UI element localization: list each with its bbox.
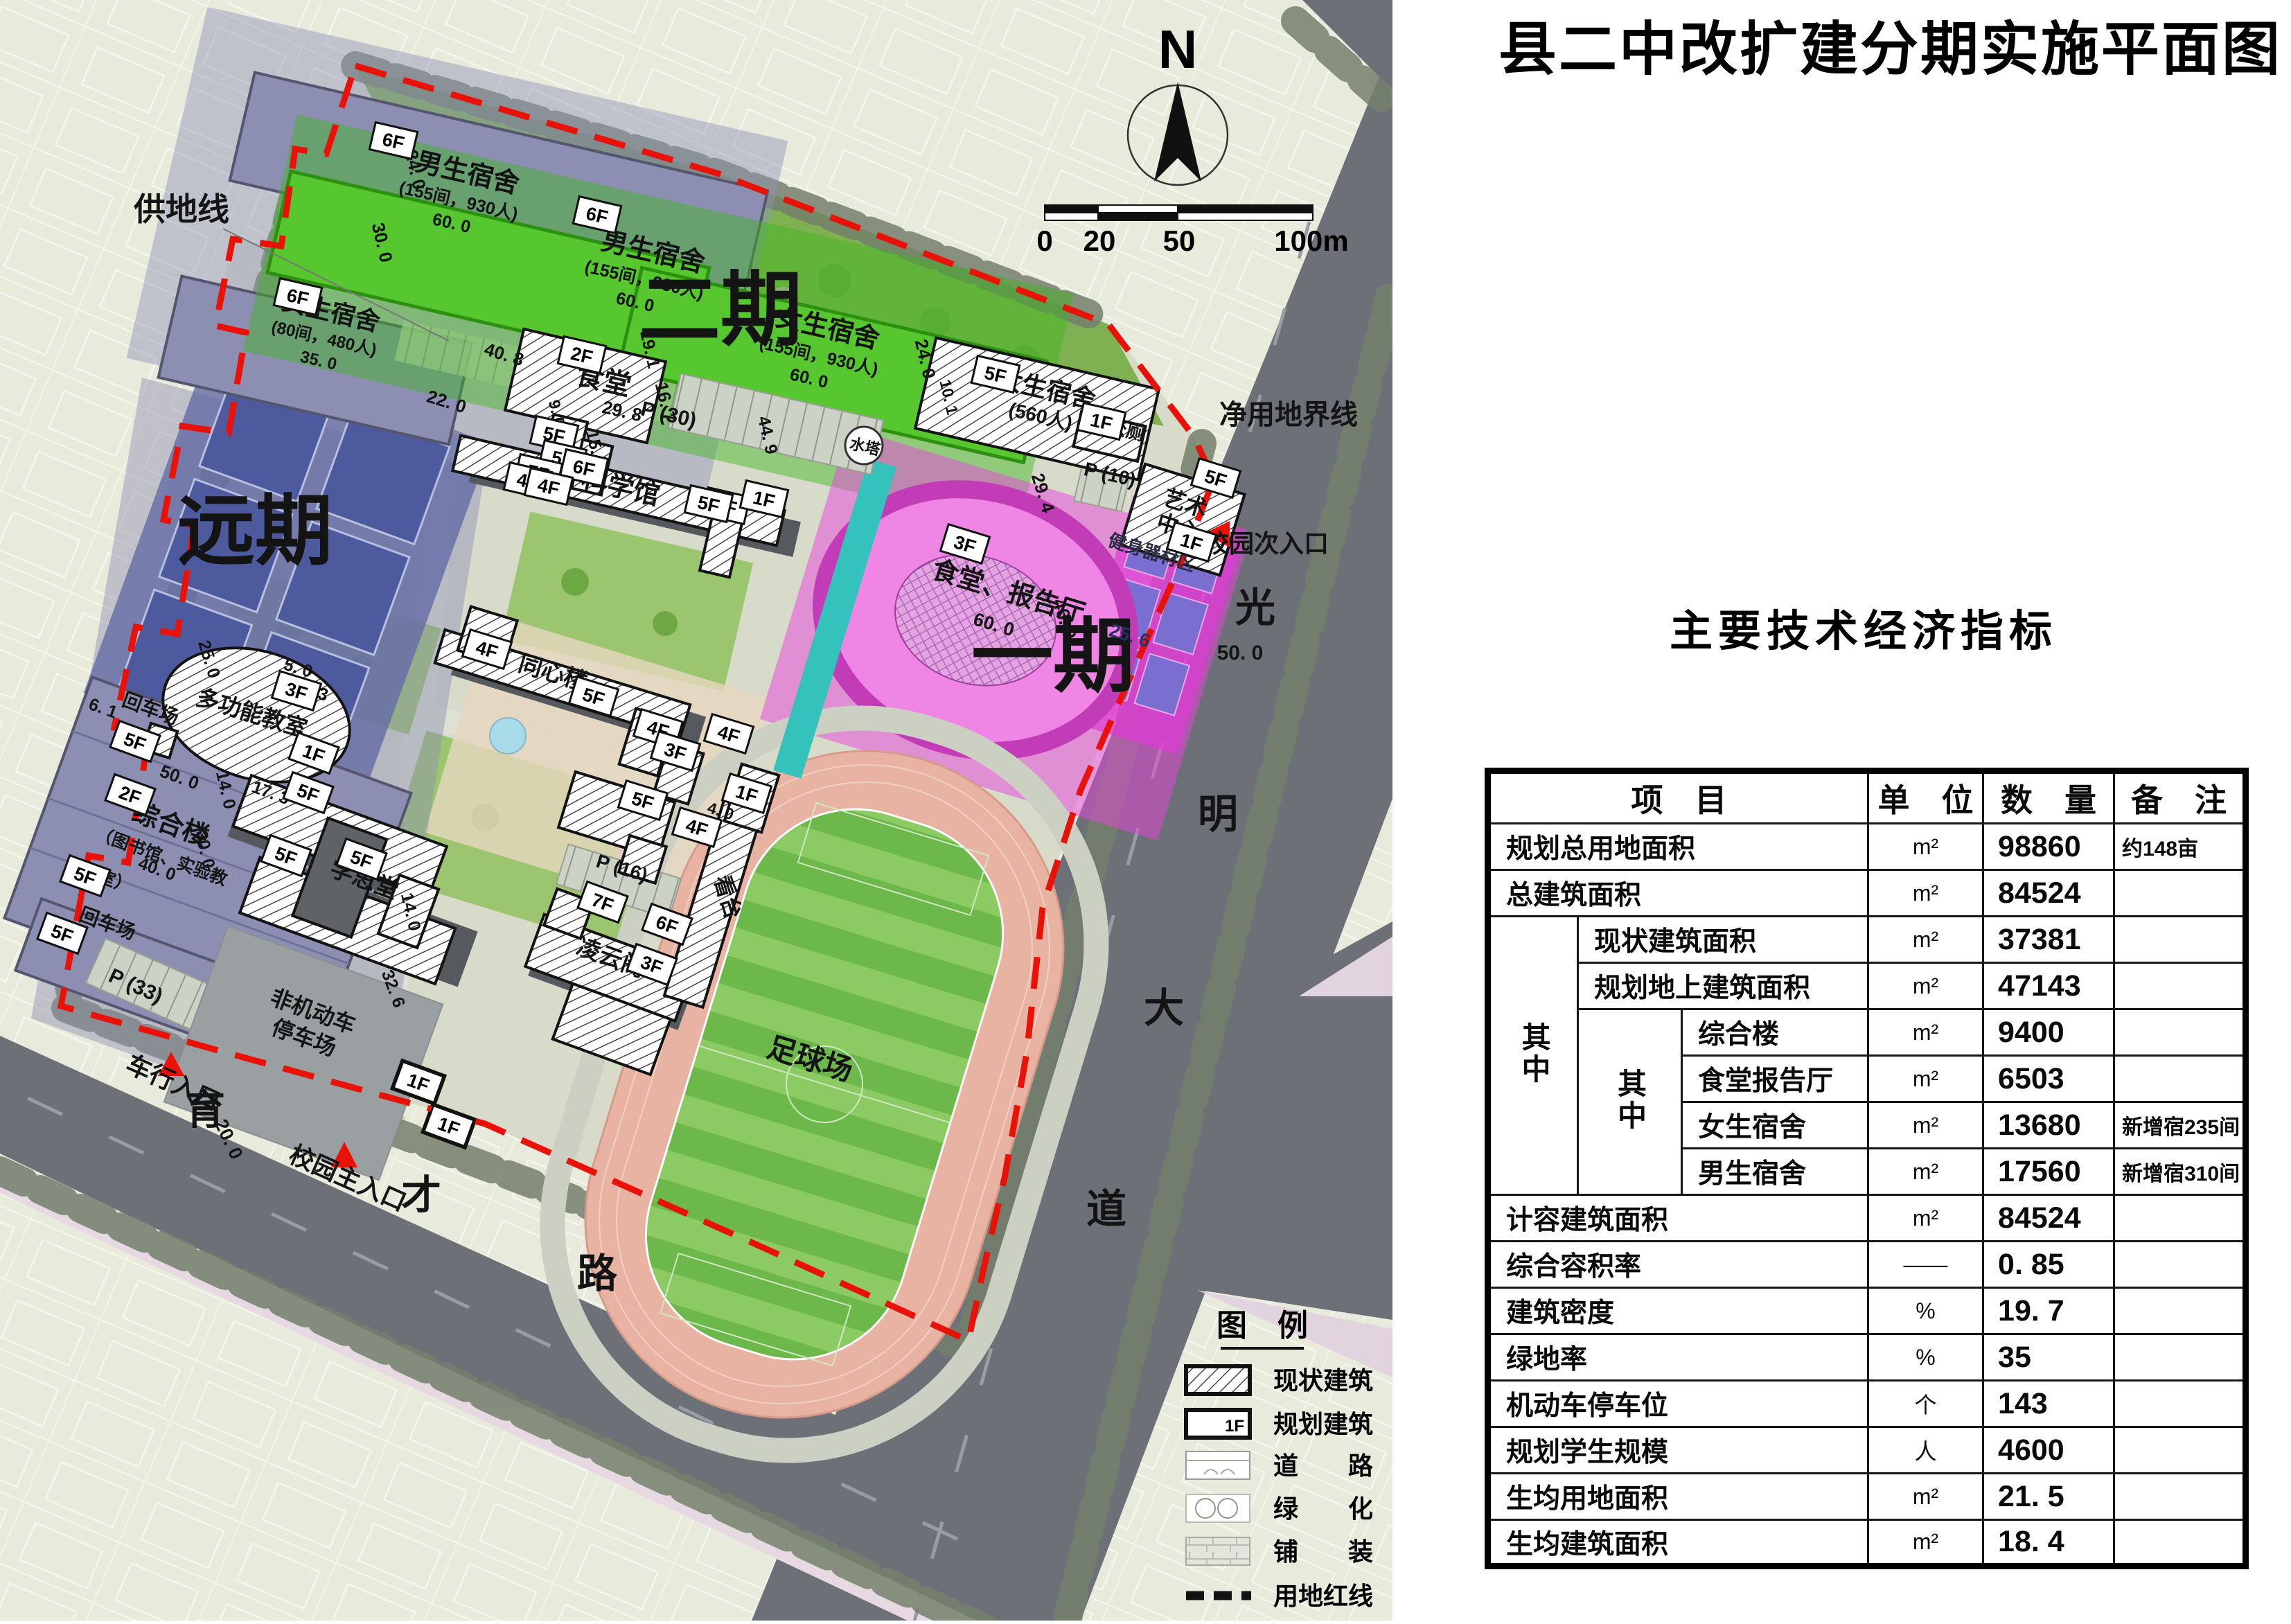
table-row: 其中 现状建筑面积 m² 37381 <box>1488 917 2246 963</box>
label-road-guangming-ming: 明 <box>1198 792 1238 837</box>
scale-bar: 0 20 50 100m <box>1036 205 1348 257</box>
header-qty: 数 量 <box>1983 771 2114 824</box>
table-row: 其中 综合楼 m² 9400 <box>1488 1009 2246 1056</box>
legend-label-paving: 铺 装 <box>1273 1537 1373 1566</box>
site-plan-canvas: N 0 20 50 100m 图 例 现状建筑 1F 规划建筑 道 路 绿 化 … <box>0 0 1392 1621</box>
table-row: 绿地率 % 35 <box>1488 1334 2246 1381</box>
pond <box>490 718 526 754</box>
economic-indicators: 项 目 单 位 数 量 备 注 规划总用地面积 m² 98860 约148亩 总… <box>1485 768 2249 1569</box>
table-row: 规划学生规模 人 4600 <box>1488 1427 2246 1474</box>
label-road-yucai-lu: 路 <box>577 1251 618 1296</box>
legend-label-green: 绿 化 <box>1273 1494 1373 1523</box>
label-gongdixian: 供地线 <box>134 191 229 227</box>
table-row: 生均用地面积 m² 21. 5 <box>1488 1474 2246 1520</box>
legend-swatch-existing <box>1186 1366 1250 1394</box>
label-road-yucai-cai: 才 <box>401 1173 441 1218</box>
header-unit: 单 位 <box>1868 771 1983 824</box>
table-row: 总建筑面积 m² 84524 <box>1488 870 2246 917</box>
label-jingyongdi-jiexian: 净用地界线 <box>1219 400 1358 430</box>
scale-tick-20: 20 <box>1083 224 1116 257</box>
label-road-guangming-da: 大 <box>1144 986 1184 1031</box>
legend-label-road: 道 路 <box>1273 1451 1374 1480</box>
site-plan-sheet: { "title": "县二中改扩建分期实施平面图", "table": { "… <box>0 0 2291 1621</box>
legend-title: 图 例 <box>1217 1309 1308 1343</box>
table-row: 机动车停车位 个 143 <box>1488 1381 2246 1427</box>
label-phase-yuanqi: 远期 <box>177 489 333 575</box>
label-dim-guangming-width: 50. 0 <box>1217 642 1264 664</box>
table-row: 综合容积率 —— 0. 85 <box>1488 1242 2246 1288</box>
table-row: 规划地上建筑面积 m² 47143 <box>1488 963 2246 1009</box>
table-row: 生均建筑面积 m² 18. 4 <box>1488 1520 2246 1566</box>
site-plan-map: N 0 20 50 100m 图 例 现状建筑 1F 规划建筑 道 路 绿 化 … <box>0 0 1392 1621</box>
header-note: 备 注 <box>2114 771 2246 824</box>
scale-tick-50: 50 <box>1163 224 1196 257</box>
legend-planned-tag: 1F <box>1225 1417 1244 1436</box>
table-row: 建筑密度 % 19. 7 <box>1488 1288 2246 1334</box>
scale-tick-100: 100m <box>1274 224 1348 257</box>
header-item: 项 目 <box>1488 771 1868 824</box>
table-row: 计容建筑面积 m² 84524 <box>1488 1195 2246 1242</box>
merge-cell-qizhong-inner: 其中 <box>1578 1009 1682 1195</box>
legend-label-planned: 规划建筑 <box>1273 1410 1373 1438</box>
north-label: N <box>1158 19 1197 80</box>
page-title: 县二中改扩建分期实施平面图 <box>1489 3 2291 87</box>
label-entrance-secondary: 校园次入口 <box>1204 529 1329 558</box>
economic-indicators-table: 项 目 单 位 数 量 备 注 规划总用地面积 m² 98860 约148亩 总… <box>1485 768 2249 1569</box>
legend-swatch-road <box>1186 1451 1250 1479</box>
legend-label-existing: 现状建筑 <box>1273 1366 1373 1395</box>
legend-label-redline: 用地红线 <box>1273 1582 1373 1610</box>
merge-cell-qizhong: 其中 <box>1488 917 1578 1195</box>
table-header-row: 项 目 单 位 数 量 备 注 <box>1488 771 2246 824</box>
legend-swatch-paving <box>1186 1537 1250 1565</box>
label-road-guangming-guang: 光 <box>1235 585 1275 630</box>
table-title: 主要技术经济指标 <box>1485 596 2243 658</box>
table-row: 规划总用地面积 m² 98860 约148亩 <box>1488 824 2246 870</box>
label-road-guangming-dao: 道 <box>1086 1187 1126 1232</box>
scale-tick-0: 0 <box>1036 224 1052 257</box>
